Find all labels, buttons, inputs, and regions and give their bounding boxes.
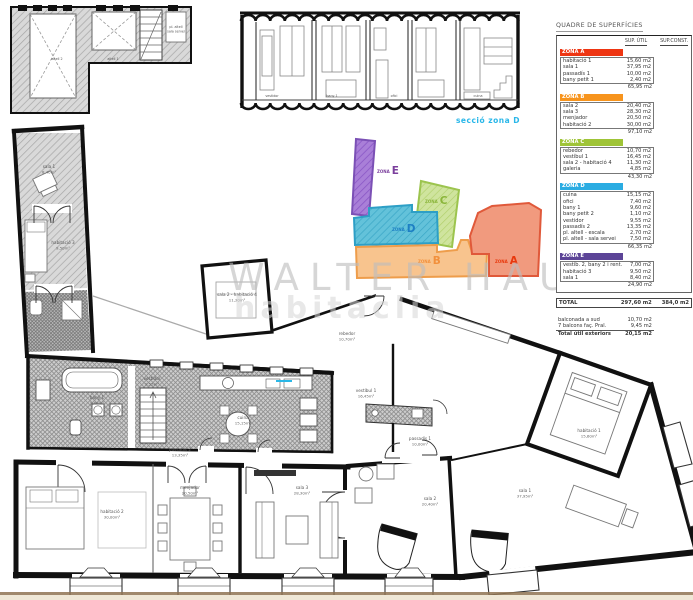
svg-text:vestíbul 116,45m²: vestíbul 116,45m² bbox=[356, 388, 377, 398]
floorplan-page: secció zona D ZONAE ZONAC ZONAD ZONAB ZO… bbox=[0, 0, 693, 600]
table-column-headers: SUP. ÚTIL SUP.CONST. bbox=[560, 39, 688, 46]
exterior-total-row: Total útil exteriors 20,15 m2 bbox=[556, 330, 654, 337]
zone-rows: cuina15,15 m2ofici7,40 m2bany 19,60 m2ba… bbox=[560, 191, 654, 243]
zone-label-E: ZONAE bbox=[377, 165, 399, 177]
total-util-value: 297,60 m2 bbox=[621, 299, 652, 307]
zone-block: ZONA Evestíb. 2, bany 2 i rent.7,00 m2ha… bbox=[560, 253, 688, 288]
exteriors-block: balconada a sud 10,70 m2 7 balcons faç. … bbox=[556, 317, 692, 338]
zone-subtotal: 43,30 m2 bbox=[560, 174, 654, 181]
zone-subtotal: 24,90 m2 bbox=[560, 282, 654, 289]
svg-text:vestidor: vestidor bbox=[265, 94, 279, 98]
vestibul2-bany2 bbox=[23, 290, 91, 352]
table-frame: SUP. ÚTIL SUP.CONST. ZONA Ahabitació 115… bbox=[556, 35, 692, 293]
section-label: secció zona D bbox=[456, 116, 520, 125]
galeria-strip bbox=[17, 133, 81, 151]
dining-table bbox=[158, 487, 222, 571]
grand-piano bbox=[375, 524, 418, 571]
sala2-furniture bbox=[355, 464, 394, 503]
hall-bench bbox=[432, 310, 511, 343]
table-title: QUADRE DE SUPERFÍCIES bbox=[556, 22, 643, 32]
zone-rows: vestíb. 2, bany 2 i rent.7,00 m2habitaci… bbox=[560, 261, 654, 282]
zone-rows: sala 220,40 m2sala 328,30 m2menjador20,5… bbox=[560, 102, 654, 129]
attic-mini-plan bbox=[12, 5, 190, 112]
habitacio1-room bbox=[527, 353, 651, 476]
svg-text:sala 328,30m²: sala 328,30m² bbox=[294, 485, 311, 495]
zone-block: ZONA Crebedor10,70 m2vestíbul 116,45 m2s… bbox=[560, 139, 688, 181]
zone-subtotal: 97,10 m2 bbox=[560, 129, 654, 136]
habitacio2-furniture bbox=[26, 487, 146, 549]
zone-block: ZONA Ahabitació 115,60 m2sala 137,95 m2p… bbox=[560, 49, 688, 91]
svg-text:sala 137,95m²: sala 137,95m² bbox=[517, 488, 534, 498]
total-const-value: 384,0 m2 bbox=[662, 299, 689, 307]
zone-rows: habitació 115,60 m2sala 137,95 m2passadí… bbox=[560, 57, 654, 84]
col-sup-const: SUP.CONST. bbox=[660, 39, 688, 46]
svg-text:pl. altellsala servei: pl. altellsala servei bbox=[167, 25, 185, 33]
surface-table: QUADRE DE SUPERFÍCIES SUP. ÚTIL SUP.CONS… bbox=[556, 12, 692, 338]
zone-rows: rebedor10,70 m2vestíbul 116,45 m2sala 2 … bbox=[560, 147, 654, 174]
zones-container: ZONA Ahabitació 115,60 m2sala 137,95 m2p… bbox=[560, 49, 688, 289]
desk bbox=[566, 485, 640, 531]
exterior-row: 7 balcons faç. Pral. 9,45 m2 bbox=[556, 323, 654, 329]
svg-text:rebedor10,70m²: rebedor10,70m² bbox=[339, 331, 356, 341]
zone-shape-E bbox=[352, 139, 375, 216]
svg-text:ofici: ofici bbox=[391, 94, 398, 98]
street-strip bbox=[0, 595, 693, 600]
zone-block: ZONA Bsala 220,40 m2sala 328,30 m2menjad… bbox=[560, 94, 688, 136]
zone-row: habitació 230,00 m2 bbox=[561, 122, 653, 128]
svg-text:altell 1: altell 1 bbox=[107, 57, 118, 61]
sala3-furniture bbox=[254, 470, 338, 558]
zone-diagram: ZONAE ZONAC ZONAD ZONAB ZONAA bbox=[352, 139, 541, 278]
zone-row: pl. altell - sala servei7,50 m2 bbox=[561, 236, 653, 242]
col-sup-util: SUP. ÚTIL bbox=[625, 39, 647, 46]
svg-text:bany 19,60m²: bany 19,60m² bbox=[90, 395, 105, 405]
svg-text:sala 18,40m²: sala 18,40m² bbox=[42, 164, 56, 174]
zone-subtotal: 66,35 m2 bbox=[560, 244, 654, 251]
total-label: TOTAL bbox=[559, 299, 577, 307]
grand-piano bbox=[470, 527, 511, 573]
vaulted-floor bbox=[241, 103, 518, 109]
entry-door bbox=[364, 287, 401, 316]
vaulted-ceiling bbox=[241, 15, 518, 21]
svg-text:altell 2: altell 2 bbox=[51, 57, 62, 61]
total-row: TOTAL 297,60 m2 384,0 m2 bbox=[556, 298, 692, 308]
svg-text:passadís 213,35m²: passadís 213,35m² bbox=[169, 447, 191, 457]
zone-row: galeria4,85 m2 bbox=[561, 166, 653, 172]
zone-header: ZONA C bbox=[560, 139, 623, 146]
zone-header: ZONA A bbox=[560, 49, 623, 56]
zone-block: ZONA Dcuina15,15 m2ofici7,40 m2bany 19,6… bbox=[560, 183, 688, 250]
svg-text:bany 1: bany 1 bbox=[326, 94, 337, 98]
attic-stairs bbox=[140, 10, 162, 60]
zone-subtotal: 65,95 m2 bbox=[560, 84, 654, 91]
svg-text:cuina: cuina bbox=[474, 94, 483, 98]
zone-header: ZONA D bbox=[560, 183, 623, 190]
svg-text:sala 220,40m²: sala 220,40m² bbox=[422, 496, 439, 506]
zone-row: bany petit 12,40 m2 bbox=[561, 77, 653, 83]
svg-text:menjador20,50m²: menjador20,50m² bbox=[180, 485, 200, 495]
zone-header: ZONA E bbox=[560, 253, 623, 260]
service-stairs bbox=[140, 388, 166, 443]
zone-row: sala 18,40 m2 bbox=[561, 275, 653, 281]
section-drawing: secció zona D bbox=[240, 13, 520, 125]
svg-text:vestidor9,55m²: vestidor9,55m² bbox=[144, 376, 161, 386]
svg-text:passadís 110,00m²: passadís 110,00m² bbox=[409, 436, 431, 446]
zone-header: ZONA B bbox=[560, 94, 623, 101]
